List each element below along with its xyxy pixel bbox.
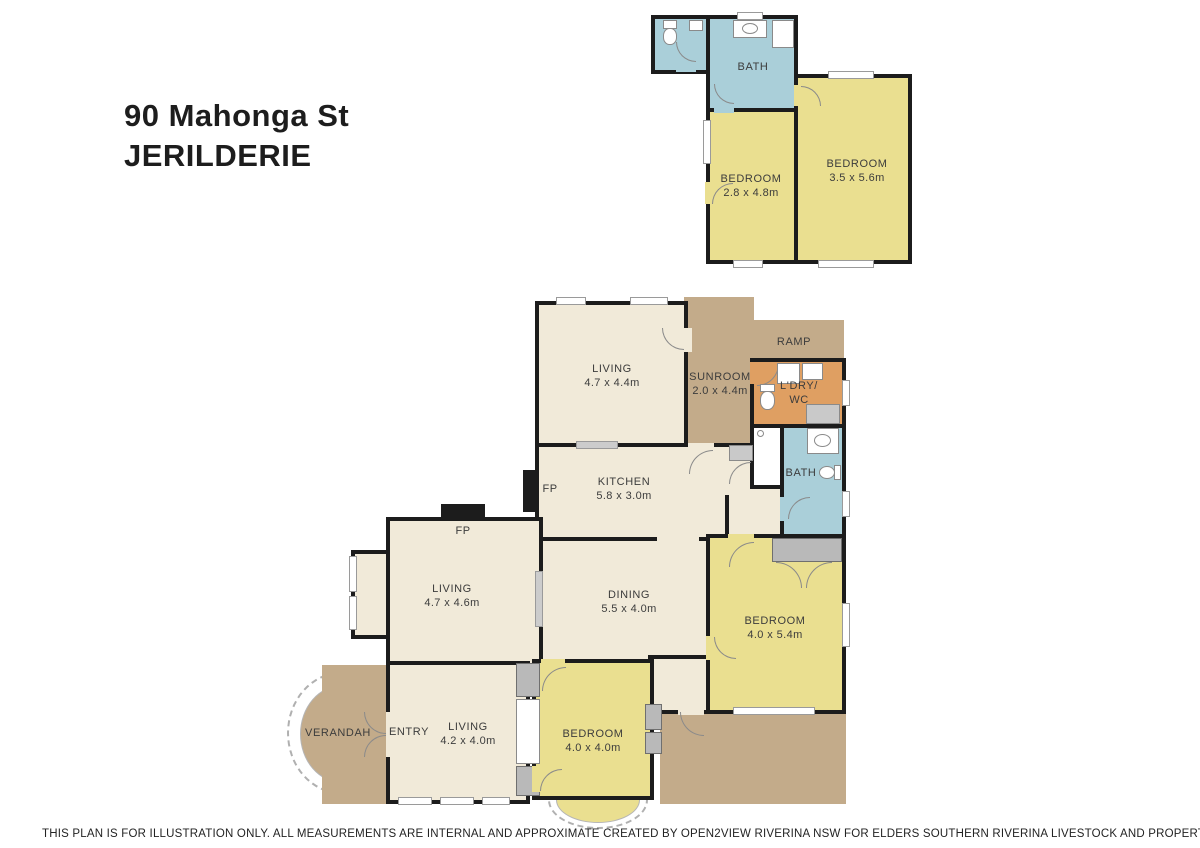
window bbox=[733, 260, 763, 268]
window bbox=[630, 297, 668, 305]
room-dims: 3.5 x 5.6m bbox=[829, 172, 884, 184]
room-label-kitchen: KITCHEN 5.8 x 3.0m bbox=[596, 475, 651, 503]
room-name: RAMP bbox=[777, 336, 811, 348]
robe bbox=[645, 704, 662, 730]
robe bbox=[772, 538, 842, 562]
toilet-icon bbox=[819, 466, 835, 479]
room-name: LIVING bbox=[592, 363, 632, 375]
room-label-living-mid: LIVING 4.7 x 4.6m bbox=[424, 582, 479, 610]
suburb-line: JERILDERIE bbox=[124, 136, 349, 176]
bay-window-bedroom-front bbox=[548, 800, 648, 830]
door-gap bbox=[676, 63, 696, 72]
room-label-sunroom: SUNROOM 2.0 x 4.4m bbox=[689, 370, 751, 398]
room-dims: 4.0 x 4.0m bbox=[565, 742, 620, 754]
room-name: BEDROOM bbox=[562, 728, 623, 740]
door-gap bbox=[714, 104, 734, 113]
room-name: BEDROOM bbox=[744, 615, 805, 627]
window bbox=[398, 797, 432, 805]
window bbox=[842, 603, 850, 647]
room-name: KITCHEN bbox=[598, 476, 650, 488]
room-dims: 4.0 x 5.4m bbox=[747, 629, 802, 641]
sink-icon bbox=[689, 20, 703, 31]
room-name: LIVING bbox=[448, 721, 488, 733]
door-gap bbox=[684, 328, 692, 352]
window bbox=[482, 797, 510, 805]
opening-kitchen-dining bbox=[657, 537, 699, 545]
robe bbox=[645, 732, 662, 754]
window bbox=[842, 491, 850, 517]
toilet-icon bbox=[834, 465, 841, 480]
window bbox=[349, 556, 357, 592]
room-label-unit-bath: BATH bbox=[738, 60, 769, 74]
room-name: BATH bbox=[738, 61, 769, 73]
window bbox=[703, 120, 711, 164]
room-name: SUNROOM bbox=[689, 371, 751, 383]
fireplace-label: FP bbox=[542, 483, 557, 495]
window bbox=[733, 707, 815, 715]
room-name: BEDROOM bbox=[720, 173, 781, 185]
room-label-unit-bedroom-small: BEDROOM 2.8 x 4.8m bbox=[720, 172, 781, 200]
room-name: BATH bbox=[786, 467, 817, 479]
room-name: L'DRY/ bbox=[780, 380, 818, 392]
room-name: LIVING bbox=[432, 583, 472, 595]
window bbox=[828, 71, 874, 79]
cupboard bbox=[516, 699, 540, 764]
basin-icon bbox=[814, 434, 831, 447]
room-dims: 4.7 x 4.4m bbox=[584, 377, 639, 389]
window bbox=[842, 380, 850, 406]
room-name: VERANDAH bbox=[305, 727, 371, 739]
room-label-ramp: RAMP bbox=[777, 335, 811, 349]
room-label-laundry: L'DRY/ WC bbox=[780, 379, 818, 407]
shower-drain-icon bbox=[757, 430, 764, 437]
address-line: 90 Mahonga St bbox=[124, 96, 349, 136]
floor-plan-canvas: 90 Mahonga St JERILDERIE BATH BEDROOM 2.… bbox=[0, 0, 1200, 848]
room-label-dining: DINING 5.5 x 4.0m bbox=[601, 588, 656, 616]
window bbox=[818, 260, 874, 268]
room-label-living-top: LIVING 4.7 x 4.4m bbox=[584, 362, 639, 390]
window bbox=[440, 797, 474, 805]
room-dims: 2.0 x 4.4m bbox=[692, 385, 747, 397]
window bbox=[349, 596, 357, 630]
window bbox=[556, 297, 586, 305]
toilet-icon bbox=[760, 391, 775, 410]
fireplace-label: FP bbox=[455, 525, 470, 537]
opening bbox=[535, 571, 543, 627]
fireplace-kitchen bbox=[523, 470, 537, 512]
room-dims: 4.2 x 4.0m bbox=[440, 735, 495, 747]
toilet-icon bbox=[663, 28, 677, 45]
room-shower bbox=[750, 424, 784, 489]
room-dims: 2.8 x 4.8m bbox=[723, 187, 778, 199]
room-dims: 5.5 x 4.0m bbox=[601, 603, 656, 615]
room-label-bedroom-right: BEDROOM 4.0 x 5.4m bbox=[744, 614, 805, 642]
room-dims: 4.7 x 4.6m bbox=[424, 597, 479, 609]
room-label-bath: BATH bbox=[786, 466, 817, 480]
room-label-bedroom-front: BEDROOM 4.0 x 4.0m bbox=[562, 727, 623, 755]
shower-icon bbox=[772, 20, 794, 48]
robe bbox=[516, 663, 540, 697]
room-dims: 5.8 x 3.0m bbox=[596, 490, 651, 502]
opening bbox=[576, 441, 618, 449]
room-name: ENTRY bbox=[389, 726, 429, 738]
basin-icon bbox=[742, 23, 758, 34]
fireplace-living-mid bbox=[441, 504, 485, 519]
room-label-unit-bedroom-large: BEDROOM 3.5 x 5.6m bbox=[826, 157, 887, 185]
step bbox=[729, 445, 753, 461]
room-name: DINING bbox=[608, 589, 650, 601]
page-title: 90 Mahonga St JERILDERIE bbox=[124, 96, 349, 176]
tub-icon bbox=[802, 363, 823, 380]
disclaimer-text: THIS PLAN IS FOR ILLUSTRATION ONLY. ALL … bbox=[42, 828, 1200, 840]
window bbox=[737, 12, 763, 20]
room-label-entry: ENTRY bbox=[389, 725, 429, 739]
room-label-verandah: VERANDAH bbox=[305, 726, 371, 740]
step bbox=[806, 404, 840, 424]
room-name: WC bbox=[789, 394, 808, 406]
room-label-living-front: LIVING 4.2 x 4.0m bbox=[440, 720, 495, 748]
room-name: BEDROOM bbox=[826, 158, 887, 170]
